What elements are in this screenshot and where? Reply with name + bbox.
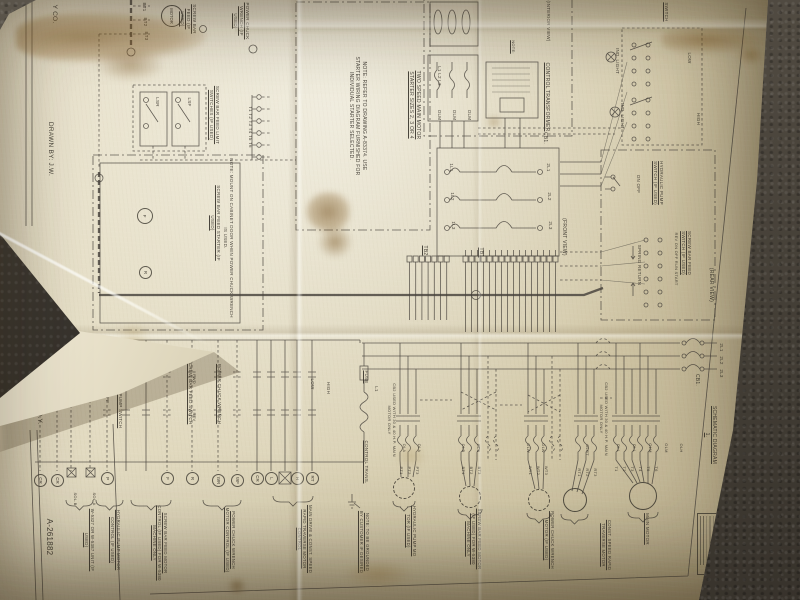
ol-w1: OLW bbox=[526, 441, 531, 455]
ol-l2: OLL bbox=[632, 441, 637, 455]
terminal-bt1: BT1 bbox=[141, 1, 147, 13]
term-bt1: BT1 bbox=[461, 464, 466, 477]
coil-f-11: F bbox=[137, 208, 153, 224]
control-trans-schematic: CONTROL TRANS. bbox=[363, 436, 369, 488]
diagram-paper-sheet: Y CO.DRAWN BY: J.W.APPR. BY: R.Y.A-26188… bbox=[0, 0, 800, 600]
coffee-stain bbox=[95, 48, 165, 82]
coil-r-4: R bbox=[186, 472, 199, 485]
term-t1: T1 bbox=[614, 464, 619, 474]
ol-h: OLH bbox=[679, 441, 684, 455]
screw-bar-feed-switch-r: SCREW BAR FEED SWITCH (IF USED) bbox=[680, 226, 692, 280]
fuse: FUSE bbox=[363, 368, 369, 386]
ol-b1: OLB bbox=[461, 441, 466, 455]
screw-bar-feed-starter: SCREW BAR FEED STARTER (IF USED) bbox=[209, 178, 221, 268]
lsf: LSF bbox=[186, 95, 192, 109]
breaker-2l1: 2L1 bbox=[545, 161, 551, 174]
term-t3: T3 bbox=[630, 464, 635, 474]
ladder-rev: REV bbox=[192, 410, 197, 424]
term-t4: T4 bbox=[638, 464, 643, 474]
note-refer-drawing: NOTE: REFER TO DRAWING A-83374. USE STAR… bbox=[347, 56, 367, 176]
ol-l1: OLL bbox=[616, 441, 621, 455]
coil-wf-6: WF bbox=[231, 474, 244, 487]
photo-of-wiring-diagram: Y CO.DRAWN BY: J.W.APPR. BY: R.Y.A-26188… bbox=[0, 0, 800, 600]
coil-cr-1: CR bbox=[51, 474, 64, 487]
cb2-note-right: CB2 USED WITH 30 & 40 H.P. MAIN MOTOR ON… bbox=[598, 374, 609, 464]
bracket-sbf-control: SCREW BAR FEED MOTOR CONTROL (IF USED) F… bbox=[151, 503, 168, 583]
coil-f-3: F bbox=[161, 472, 174, 485]
limit-switch-box bbox=[133, 85, 206, 151]
sch-2l3: 2L3 bbox=[718, 367, 724, 380]
hyd-on-off: ON OFF bbox=[635, 172, 641, 196]
small-stain bbox=[486, 116, 502, 128]
hydraulic-pump-motor: HYDRAULIC PUMP MO TOR (IF USED) bbox=[406, 502, 417, 560]
sbf-positions: REV ON OFF RUN START bbox=[674, 230, 679, 288]
tb2: TB2 bbox=[421, 243, 428, 258]
breaker-rows bbox=[445, 166, 543, 231]
rapid-traverse-motor: CONST. SPEED RAPID TRAVERSE MOTOR bbox=[601, 514, 612, 576]
border-frame bbox=[26, 0, 746, 600]
breaker-2l2: 2L2 bbox=[546, 190, 552, 203]
coil-p-2: P bbox=[101, 472, 114, 485]
heavy-feed-solid bbox=[99, 288, 603, 295]
motor-circle bbox=[393, 477, 415, 499]
schematic-diagram-title: SCHEMATIC DIAGRAM 1. bbox=[704, 403, 717, 467]
front-view: (FRONT VIEW) bbox=[560, 210, 567, 264]
faded-spot bbox=[396, 444, 426, 468]
drawn-by: DRAWN BY: J.W. bbox=[45, 120, 54, 178]
bracket-hyd-pump-control: HYDRAULIC PUMP MOTOR CONTROL (IF USED) bbox=[110, 503, 121, 577]
sch-2l2: 2L2 bbox=[718, 354, 724, 367]
ol-m1: OLM bbox=[648, 441, 653, 455]
faded-spot bbox=[345, 560, 411, 588]
terminals-t1-t6: T1 T2 T3 T4 T5 T6 bbox=[247, 92, 253, 162]
two-speed-starter: TWO SPEED MAIN MOTOR STARTER SIZES 2, 3 … bbox=[408, 70, 421, 140]
control-transformer-box bbox=[486, 62, 538, 118]
coil-l-8: L bbox=[265, 472, 278, 485]
ol-m2: OLM bbox=[664, 441, 669, 455]
term-wt2: WT2 bbox=[536, 464, 541, 477]
main-motor: MAIN MOTOR bbox=[644, 513, 650, 545]
olm-1: OLM bbox=[436, 107, 442, 123]
hydraulic-pump-switch-r: HYDRAULIC PUMP SWITCH (IF USED) bbox=[652, 160, 664, 206]
control-transformer: CONTROL TRANSFORMER bbox=[543, 53, 550, 141]
vertical-fold-crease bbox=[288, 0, 308, 600]
drawing-number: A-261882 bbox=[43, 514, 54, 560]
coffee-stain bbox=[306, 192, 350, 232]
breaker-1l2: 1L2 bbox=[449, 190, 455, 203]
limit-switches: SCREW BAR FEED LIMIT SWITCHES (IF USED) bbox=[208, 83, 220, 147]
cb1-top: CB1. bbox=[541, 130, 548, 146]
drum-switch-contacts bbox=[630, 42, 652, 141]
term-rt2: RT2 bbox=[585, 466, 590, 479]
sbf-starter-outer-box bbox=[93, 155, 263, 330]
term-rt1: RT1 bbox=[577, 466, 582, 479]
dark-spot bbox=[228, 578, 246, 594]
drum-high: HIGH bbox=[695, 110, 701, 128]
coil-r-12: R bbox=[139, 266, 152, 279]
breaker-1l3: 1L3 bbox=[450, 219, 456, 232]
coil-cr-7: CR bbox=[251, 472, 264, 485]
rear-view: (REAR VIEW) bbox=[707, 263, 714, 307]
sol-b: SOL.B bbox=[73, 489, 78, 509]
term-t2: T2 bbox=[622, 464, 627, 474]
term-rt3: RT3 bbox=[593, 466, 598, 479]
vertical-fold-crease bbox=[472, 0, 486, 600]
phase-l1l2l3: L1 L2 L3 bbox=[436, 58, 442, 94]
coil-cr-0: CR bbox=[34, 474, 47, 487]
cb1-right: CB1. bbox=[693, 372, 700, 388]
term-t5: T5 bbox=[646, 464, 651, 474]
olm-2: OLM bbox=[451, 107, 457, 123]
bracket-w5327-unit: W-5327 OR W-5387 UNIT (IF USED) bbox=[84, 503, 95, 577]
line-l1: L1 bbox=[373, 384, 379, 394]
spring-return: SPRING RETURN bbox=[636, 241, 642, 289]
motor-circle bbox=[563, 488, 587, 512]
starter-mount-note: NOTE: MOUNT ON CABINET DOOR WHEN POWER C… bbox=[222, 158, 234, 318]
ol-rt: OLRT bbox=[585, 441, 590, 459]
ind-light-2: IND. LIGHT bbox=[619, 101, 625, 131]
ladder-low: LOW bbox=[309, 376, 315, 392]
lsr: LSR bbox=[154, 95, 160, 109]
coffee-stain bbox=[318, 226, 352, 258]
term-t6: T6 bbox=[654, 464, 659, 474]
ind-light-1: IND. LIGHT bbox=[614, 46, 620, 76]
horizontal-fold-crease bbox=[235, 18, 800, 34]
cb2-note-left: CB2 USED WITH 30 & 40 H.P. MAIN MOTOR ON… bbox=[386, 376, 397, 464]
power-chuck-wrench-motor: POWER CHUCK WRENCH MOTOR (IF USED) bbox=[544, 510, 555, 570]
coil-wr-5: WR bbox=[212, 474, 225, 487]
note-small: NOTE: bbox=[511, 37, 516, 57]
motor-circle bbox=[629, 482, 657, 510]
ladder-high: HIGH bbox=[325, 379, 331, 397]
ol-w2: OLW bbox=[541, 441, 546, 455]
term-wt1: WT1 bbox=[528, 464, 533, 477]
breaker-2l3: 2L3 bbox=[547, 219, 553, 232]
coffee-stain bbox=[738, 46, 764, 64]
breaker-1l1: 1L1 bbox=[448, 161, 454, 174]
term-wt3: WT3 bbox=[544, 464, 549, 477]
motor-circle bbox=[528, 489, 550, 511]
bracket-pcw-control: POWER CHUCK WRENCH MOTOR CONTROL (IF USE… bbox=[225, 503, 236, 577]
